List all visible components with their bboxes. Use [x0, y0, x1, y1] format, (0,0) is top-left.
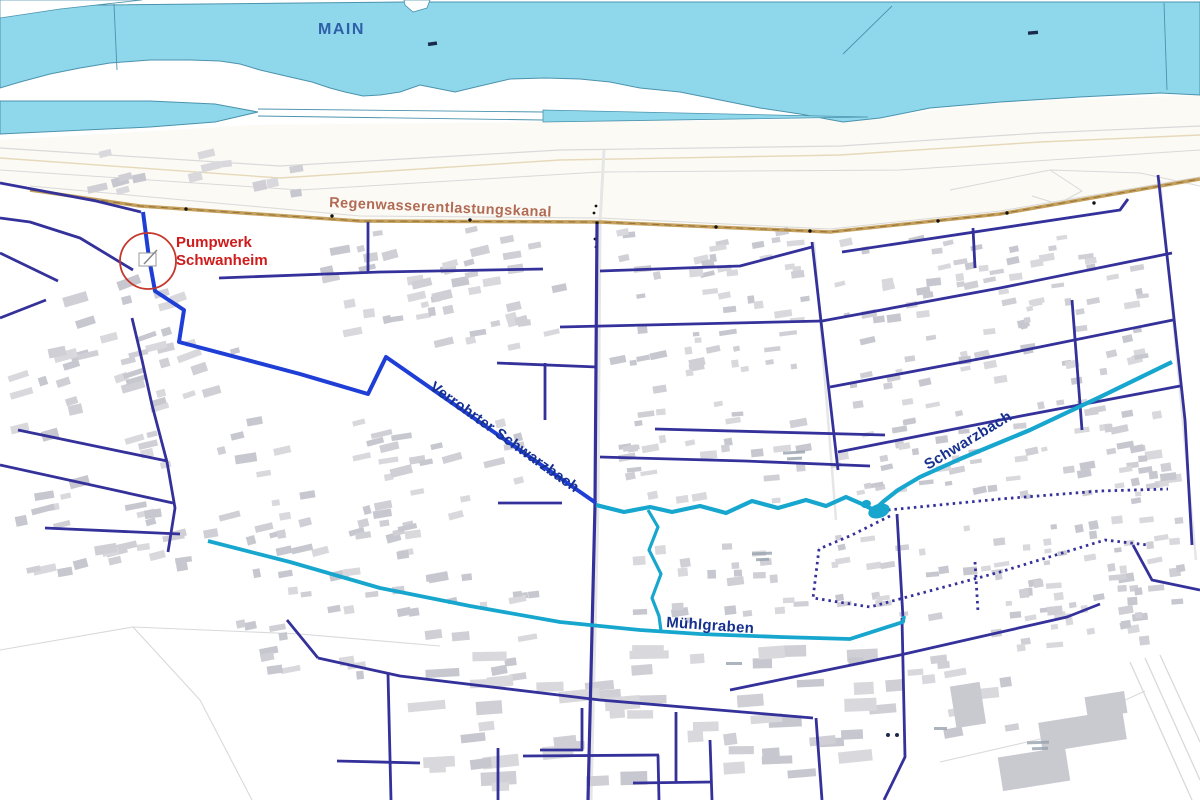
building [916, 310, 930, 318]
building [236, 619, 246, 628]
building [278, 570, 293, 579]
manhole-dots [714, 225, 717, 228]
building [121, 295, 132, 305]
building [277, 530, 286, 539]
building [442, 305, 454, 315]
building [460, 732, 485, 743]
building [246, 535, 257, 546]
building [726, 269, 738, 276]
building [839, 237, 853, 247]
building [885, 679, 904, 692]
building [854, 682, 874, 695]
building [252, 568, 261, 578]
building [1013, 422, 1027, 429]
stream-branch [648, 510, 661, 631]
building [1024, 317, 1031, 323]
manhole-dots [595, 205, 598, 208]
building [1006, 601, 1013, 606]
building [423, 756, 455, 768]
building [625, 472, 636, 481]
building [904, 355, 915, 362]
building [733, 345, 740, 351]
building [1119, 466, 1133, 473]
building [944, 668, 967, 679]
building [528, 591, 540, 599]
building [926, 571, 939, 577]
building [1006, 475, 1021, 481]
building [955, 410, 963, 417]
manhole-dots [468, 218, 471, 221]
building [926, 335, 937, 341]
building [700, 450, 717, 459]
building [919, 548, 926, 555]
building [1152, 410, 1163, 419]
building [931, 248, 942, 255]
building [1139, 516, 1154, 523]
building [866, 562, 882, 571]
building [356, 245, 365, 253]
field-path [0, 627, 440, 650]
building [60, 492, 71, 499]
building [723, 761, 745, 774]
building [1014, 455, 1027, 462]
building [707, 570, 716, 579]
building [1054, 592, 1064, 601]
building [860, 536, 875, 543]
building [983, 276, 996, 283]
building [442, 452, 463, 464]
building [907, 668, 923, 676]
building [680, 558, 691, 568]
building [676, 495, 689, 504]
building [1176, 564, 1186, 573]
building [1107, 563, 1116, 572]
sewer-line [897, 514, 903, 618]
building [981, 565, 991, 571]
building [772, 497, 781, 503]
motorway [1145, 658, 1200, 780]
building [860, 371, 873, 379]
building [725, 417, 741, 425]
building [762, 747, 780, 758]
building [636, 354, 650, 362]
building [38, 376, 49, 387]
building [492, 782, 510, 791]
building [721, 444, 730, 452]
building [838, 749, 873, 764]
building [918, 377, 931, 386]
sewer-line [710, 740, 712, 800]
building [994, 561, 1010, 568]
building [955, 273, 964, 281]
building [63, 359, 81, 370]
building [685, 369, 693, 376]
building [469, 329, 486, 337]
building [609, 355, 626, 365]
building [753, 572, 766, 579]
building [1106, 273, 1119, 280]
building [217, 446, 226, 455]
building [391, 432, 412, 441]
building [343, 605, 354, 615]
building [970, 458, 982, 464]
building [267, 664, 283, 674]
building [75, 315, 96, 329]
building [202, 385, 222, 398]
building [925, 401, 940, 408]
building [468, 286, 481, 295]
building [970, 244, 982, 251]
building [543, 328, 559, 336]
building [31, 504, 55, 516]
building [421, 301, 429, 308]
building [203, 528, 218, 539]
building [1135, 491, 1141, 496]
building [1147, 556, 1163, 564]
building [390, 464, 413, 478]
sewer-line [388, 674, 391, 800]
building [693, 721, 719, 731]
building [1005, 723, 1020, 732]
building [999, 677, 1011, 688]
building [1171, 598, 1183, 604]
building [125, 501, 147, 511]
building [507, 343, 520, 351]
map-canvas: MAIN Regenwasserentlastungskanal Pumpwer… [0, 0, 1200, 800]
building [518, 633, 538, 642]
building [787, 768, 816, 778]
manhole-dots [330, 214, 333, 217]
sewer-line [523, 755, 659, 756]
sewer-line [658, 755, 659, 800]
sewer-line [45, 528, 180, 534]
building [1044, 548, 1052, 553]
building [618, 254, 629, 262]
building [752, 241, 765, 249]
building [943, 239, 954, 246]
building [656, 409, 666, 416]
building [343, 299, 355, 309]
stream-muehlgraben [208, 541, 904, 639]
channel-tail-line [258, 109, 543, 112]
building [1046, 642, 1063, 649]
building [793, 601, 808, 607]
building [137, 331, 157, 342]
building [640, 469, 657, 476]
building [972, 486, 987, 495]
building [407, 700, 445, 713]
building [500, 235, 514, 244]
sewer-line [497, 363, 597, 367]
building [1019, 588, 1030, 598]
building [1127, 597, 1137, 606]
building [769, 574, 778, 583]
building [551, 283, 567, 293]
building [1086, 297, 1100, 305]
building [378, 456, 398, 464]
label-strip [756, 558, 769, 561]
building [1006, 256, 1020, 265]
building [343, 327, 363, 338]
building [771, 237, 780, 244]
map-viewport: MAIN Regenwasserentlastungskanal Pumpwer… [0, 0, 1200, 800]
sewer-line [655, 429, 885, 435]
building [1088, 520, 1099, 530]
building [779, 330, 797, 336]
building [1099, 368, 1107, 376]
building [892, 425, 908, 433]
building [754, 300, 764, 309]
building [1031, 298, 1043, 307]
building [156, 389, 167, 398]
building [636, 293, 645, 299]
building [1044, 560, 1051, 565]
building [177, 348, 203, 363]
building [230, 347, 240, 355]
building [994, 375, 1008, 384]
building [235, 452, 258, 464]
building [963, 525, 970, 531]
building [57, 567, 73, 578]
building [702, 288, 718, 295]
sewer-line [0, 253, 58, 281]
label-strip [726, 662, 742, 665]
building [800, 296, 810, 302]
building [627, 710, 653, 719]
building [528, 241, 542, 249]
school-building [1038, 710, 1127, 753]
building [1121, 410, 1133, 418]
building [362, 505, 371, 515]
building [919, 479, 934, 485]
building [276, 545, 293, 556]
building [880, 463, 893, 471]
building [1121, 620, 1132, 629]
building [783, 645, 807, 657]
motorway [1160, 655, 1200, 742]
building [723, 306, 737, 313]
building [886, 313, 901, 323]
building [718, 291, 731, 299]
building [410, 488, 424, 496]
building [1110, 424, 1128, 435]
building [713, 401, 723, 407]
building [633, 609, 647, 615]
sewer-line [287, 620, 318, 658]
building [301, 591, 312, 598]
building [1074, 524, 1083, 533]
building [379, 441, 399, 453]
building [278, 632, 288, 641]
channel-tail-line [258, 116, 543, 120]
building [634, 420, 642, 426]
building [1154, 534, 1169, 541]
building [873, 315, 885, 323]
building [56, 376, 71, 387]
building [1145, 449, 1163, 460]
building [254, 522, 273, 533]
building [841, 729, 863, 739]
building [672, 603, 684, 611]
manhole-dots [184, 207, 187, 210]
building [407, 291, 426, 303]
building [100, 332, 118, 344]
building [633, 556, 646, 566]
building [1086, 628, 1095, 635]
building [244, 621, 257, 631]
building [288, 586, 298, 594]
building [935, 435, 948, 444]
building [693, 332, 700, 337]
building [1084, 553, 1097, 561]
building [785, 263, 795, 270]
sewer-line-dotted [975, 562, 978, 612]
building [880, 561, 895, 569]
building [1025, 447, 1039, 456]
building [356, 671, 364, 680]
building [1138, 455, 1147, 462]
building [1124, 300, 1141, 309]
building [1017, 644, 1026, 652]
manhole-dots [1092, 201, 1095, 204]
building [1026, 306, 1033, 312]
manhole-dots [1005, 211, 1008, 214]
building [1009, 245, 1019, 253]
building [149, 550, 166, 561]
building [883, 382, 893, 389]
building [476, 700, 503, 715]
building [246, 416, 263, 426]
building [647, 491, 658, 500]
building [995, 573, 1003, 580]
building [108, 556, 122, 566]
building [330, 245, 351, 256]
building [1117, 585, 1127, 592]
motorway [1130, 662, 1192, 800]
building [902, 398, 914, 406]
building [327, 605, 341, 614]
building [298, 517, 312, 527]
building [1043, 538, 1052, 546]
label-strip [934, 727, 947, 730]
sewer-line [0, 300, 46, 318]
building [627, 467, 642, 473]
sewer-line [600, 457, 870, 466]
building [631, 664, 653, 676]
building [1023, 544, 1031, 551]
building [734, 570, 742, 577]
building [1089, 530, 1097, 539]
building [478, 721, 494, 732]
building [690, 653, 705, 664]
building [490, 320, 500, 327]
manhole-dots [808, 229, 811, 232]
sewer-line [633, 782, 712, 783]
building [430, 442, 443, 450]
label-strip [1032, 747, 1048, 751]
building [357, 518, 369, 528]
building [1056, 235, 1067, 241]
building [856, 490, 865, 496]
building [1009, 273, 1023, 281]
building [1030, 258, 1044, 267]
building [342, 567, 361, 576]
building [1077, 468, 1092, 478]
building [727, 576, 745, 586]
building [1160, 462, 1171, 472]
building [470, 245, 490, 258]
building [928, 612, 943, 621]
building [677, 567, 688, 576]
building [373, 230, 383, 236]
manhole-dots [936, 219, 939, 222]
building [993, 537, 1005, 546]
building [1063, 466, 1075, 474]
building [428, 307, 436, 317]
building [729, 746, 754, 754]
building [144, 508, 162, 519]
sewer-line [1158, 175, 1192, 545]
building [637, 410, 654, 418]
building [831, 561, 838, 568]
building [937, 661, 950, 669]
building [983, 360, 997, 370]
label-pumpwerk-line1: Pumpwerk [176, 234, 253, 251]
building [434, 337, 454, 348]
building [219, 510, 241, 521]
building [834, 281, 845, 288]
building [1050, 524, 1057, 530]
building [273, 445, 291, 456]
building [513, 476, 524, 485]
building [136, 543, 150, 551]
building [1114, 482, 1124, 488]
building [687, 730, 703, 743]
building [723, 733, 737, 746]
building [790, 363, 797, 369]
building [751, 448, 764, 457]
building [758, 645, 785, 659]
building [740, 366, 749, 372]
building [1056, 399, 1064, 405]
building [1174, 517, 1183, 524]
building [1064, 298, 1071, 306]
building [425, 629, 443, 640]
building [706, 345, 721, 354]
building [895, 544, 909, 551]
building [182, 390, 196, 399]
building [692, 492, 708, 502]
building [536, 682, 563, 692]
label-river-main: MAIN [318, 21, 365, 38]
building [463, 259, 474, 267]
building [684, 346, 692, 354]
building [844, 698, 877, 712]
building [719, 329, 737, 336]
building [989, 269, 1004, 276]
building [365, 591, 379, 598]
marker-dots [895, 733, 899, 737]
building [1075, 308, 1085, 315]
building [1093, 593, 1105, 601]
building [1131, 477, 1140, 486]
building [1001, 297, 1016, 306]
building [1051, 624, 1059, 630]
building [381, 249, 398, 261]
building [272, 499, 281, 506]
building [269, 623, 286, 632]
building [652, 384, 666, 393]
